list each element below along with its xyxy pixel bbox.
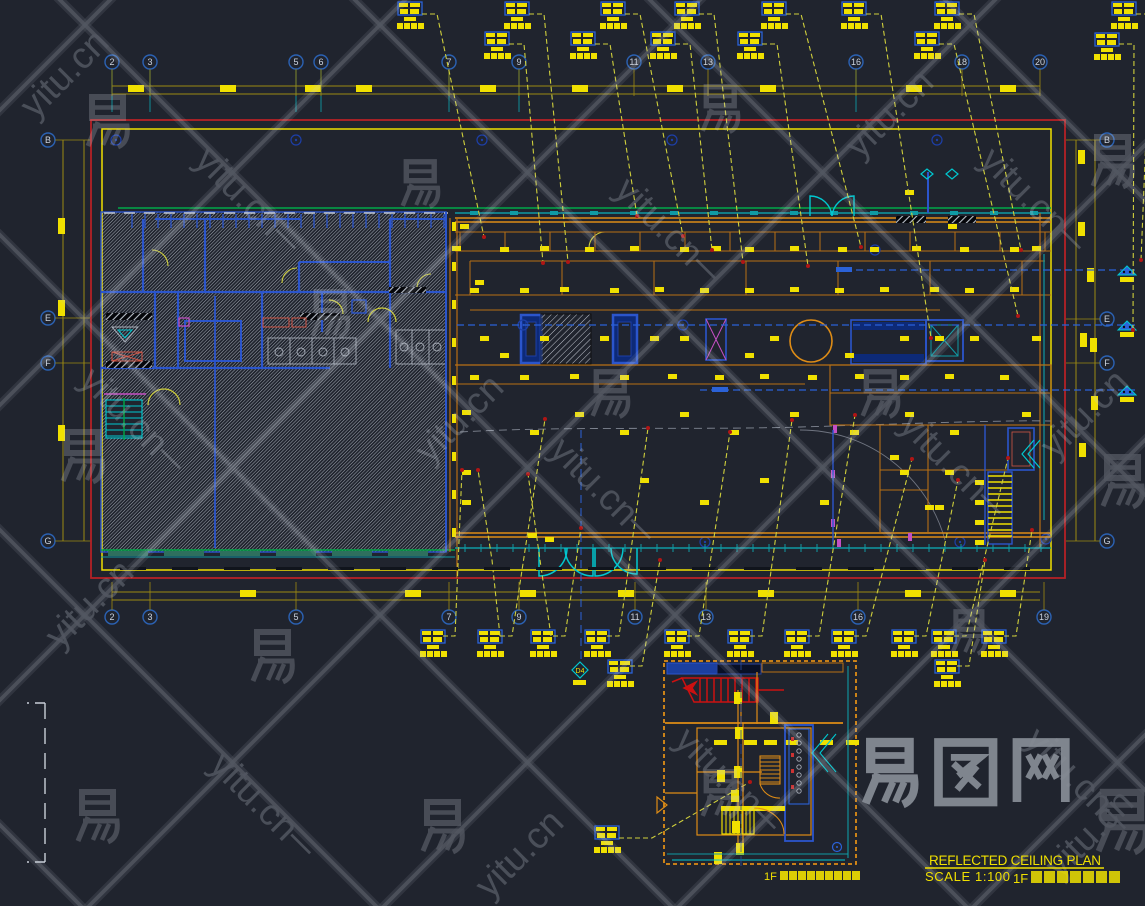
svg-text:2: 2	[109, 612, 114, 622]
svg-text:5: 5	[293, 57, 298, 67]
svg-text:SCALE 1:100: SCALE 1:100	[925, 869, 1010, 884]
svg-text:19: 19	[1039, 612, 1049, 622]
svg-text:9: 9	[516, 612, 521, 622]
svg-text:16: 16	[851, 57, 861, 67]
svg-text:16: 16	[853, 612, 863, 622]
svg-text:6: 6	[318, 57, 323, 67]
svg-text:G: G	[44, 536, 51, 546]
svg-text:9: 9	[516, 57, 521, 67]
svg-text:D4: D4	[576, 668, 585, 675]
svg-text:E: E	[1104, 314, 1110, 324]
svg-text:3: 3	[147, 57, 152, 67]
svg-text:E: E	[45, 313, 51, 323]
svg-text:7: 7	[446, 612, 451, 622]
svg-text:5: 5	[293, 612, 298, 622]
svg-text:1F: 1F	[1013, 871, 1028, 886]
svg-text:REFLECTED CEILING PLAN: REFLECTED CEILING PLAN	[929, 853, 1101, 868]
svg-text:B: B	[45, 135, 51, 145]
svg-text:20: 20	[1035, 57, 1045, 67]
svg-text:G: G	[1103, 536, 1110, 546]
svg-text:11: 11	[630, 612, 639, 622]
svg-text:1F: 1F	[764, 871, 777, 883]
svg-text:3: 3	[147, 612, 152, 622]
